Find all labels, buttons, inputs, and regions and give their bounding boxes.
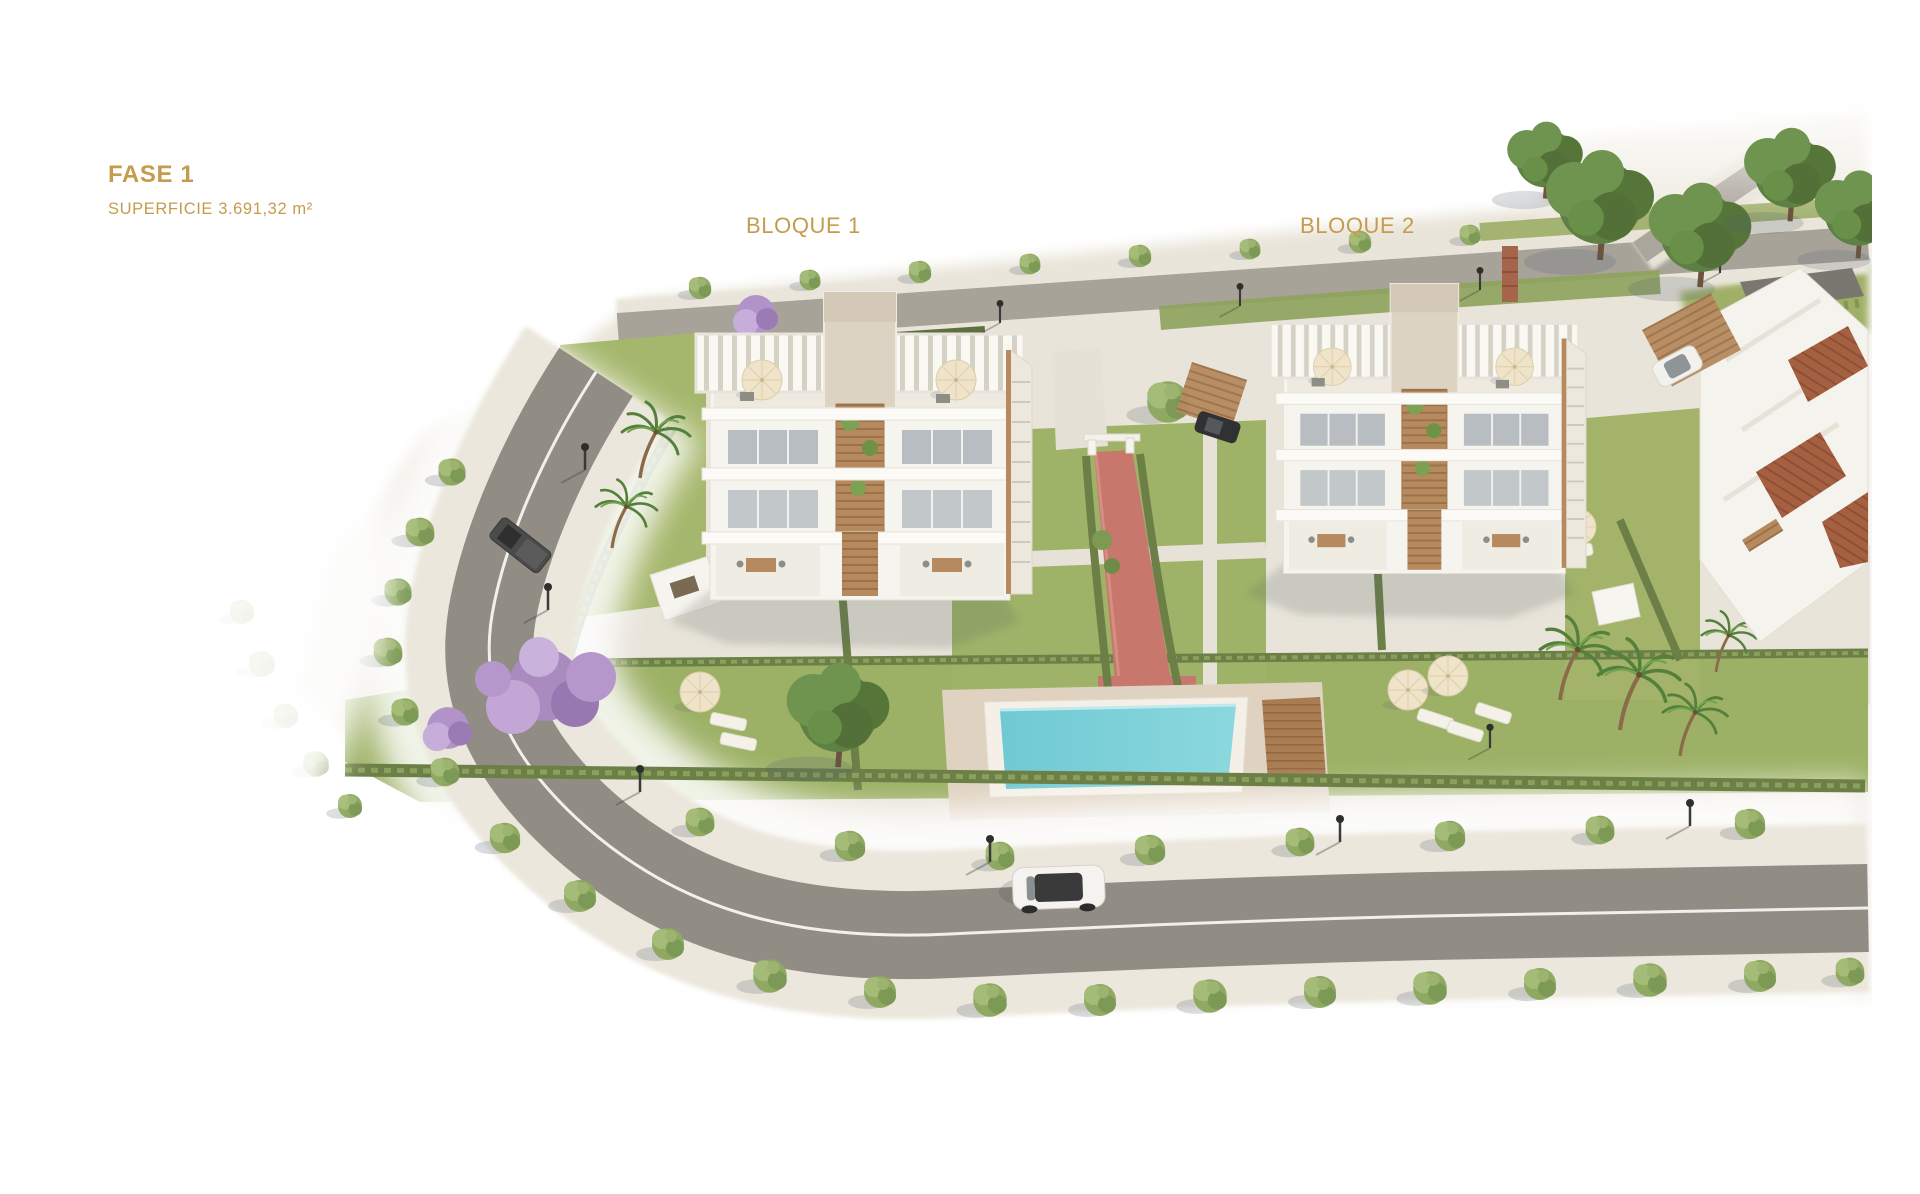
building-bloque-1 bbox=[670, 292, 1032, 648]
wooden-deck bbox=[1262, 697, 1326, 781]
site-plan-render bbox=[0, 0, 1920, 1194]
phase-label: FASE 1 bbox=[108, 161, 194, 189]
block-1-label: BLOQUE 1 bbox=[746, 213, 861, 239]
building-bloque-2 bbox=[1246, 284, 1586, 619]
block-2-label: BLOQUE 2 bbox=[1300, 213, 1415, 239]
surface-area-label: SUPERFICIE 3.691,32 m² bbox=[108, 200, 313, 219]
render-canvas: FASE 1 SUPERFICIE 3.691,32 m² BLOQUE 1 B… bbox=[0, 0, 1920, 1194]
